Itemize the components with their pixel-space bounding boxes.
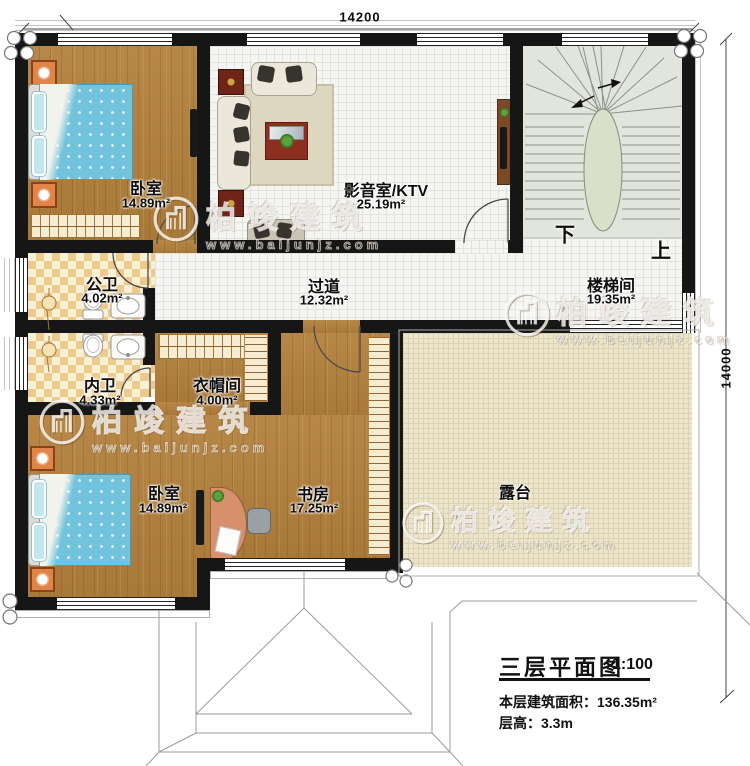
floor-area-row: 本层建筑面积：136.35m²: [499, 692, 657, 712]
room-area-ensuite-bath: 4.33m²: [79, 393, 120, 408]
plan-scale: 1:100: [612, 656, 653, 674]
room-area-hallway: 12.32m²: [300, 293, 348, 308]
room-area-bedroom-2: 14.89m²: [139, 501, 187, 516]
stairs-down-label: 下: [555, 219, 575, 248]
floor-height-label: 层高：: [499, 715, 541, 731]
floor-height-value: 3.3m: [541, 715, 573, 731]
floor-area-label: 本层建筑面积：: [499, 694, 597, 710]
room-area-media-room: 25.19m²: [357, 197, 405, 212]
room-area-cloakroom: 4.00m²: [196, 393, 237, 408]
room-label-terrace: 露台: [499, 479, 531, 503]
floor-plan: 柏竣建筑 www.baijunjz.com 柏竣建筑 www.baijunjz.…: [0, 0, 750, 766]
stairs-up-label: 上: [651, 235, 671, 264]
floor-area-value: 136.35m²: [597, 694, 657, 710]
stairs: [523, 46, 682, 238]
dimension-top: 14200: [339, 10, 380, 25]
room-area-stairwell: 19.35m²: [587, 292, 635, 307]
room-area-bedroom-1: 14.89m²: [122, 196, 170, 211]
title-underline: [499, 678, 650, 681]
dimension-right: 14000: [719, 347, 734, 388]
floor-height-row: 层高：3.3m: [499, 713, 573, 733]
room-area-public-bath: 4.02m²: [81, 291, 122, 306]
room-area-study: 17.25m²: [290, 501, 338, 516]
